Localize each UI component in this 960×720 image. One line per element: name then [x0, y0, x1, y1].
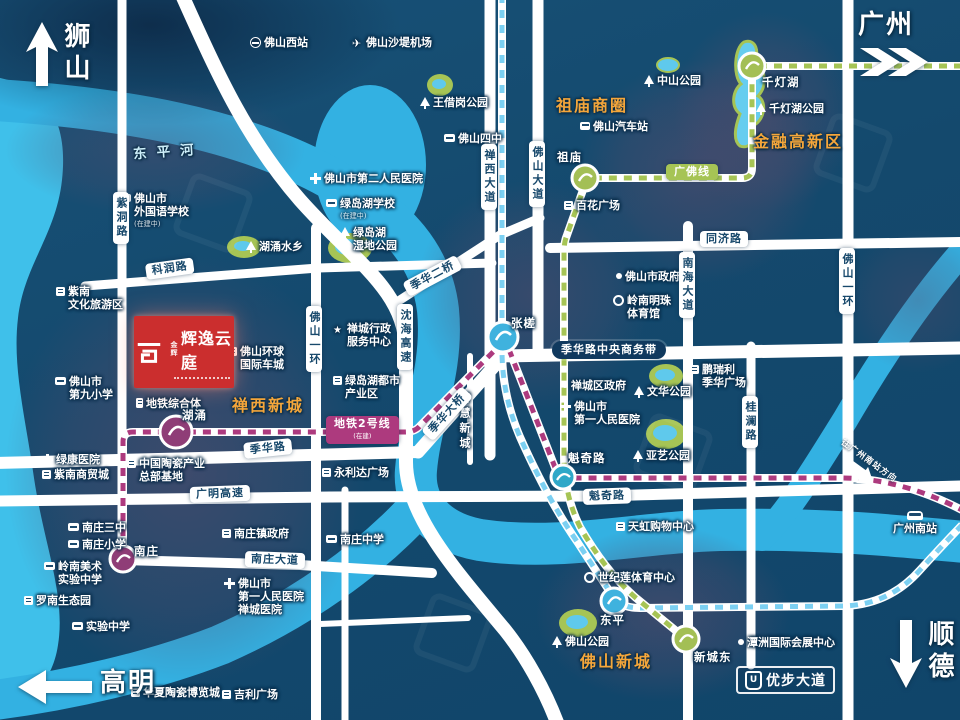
school-icon: [444, 134, 455, 142]
poi-label: 绿岛湖湿地公园: [340, 226, 397, 252]
ubu-avenue-logo: U 优步大道: [736, 666, 835, 694]
direction-label: 顺德: [924, 620, 954, 684]
poi-label: 紫南文化旅游区: [56, 285, 123, 311]
bus-icon: [580, 122, 590, 130]
tree-icon: [420, 97, 430, 106]
poi-label: 南庄小学: [68, 538, 126, 551]
tree-icon: [633, 450, 643, 459]
location-map: 佛山西站佛山沙堤机场佛山市外国语学校(在建中)王借岗公园佛山四中湖涌水乡佛山市第…: [0, 0, 960, 720]
poi-label: 文华公园: [634, 385, 691, 398]
direction-label: 狮山: [60, 22, 90, 86]
poi-label: 中山公园: [644, 74, 701, 87]
road-badge: 沈海高速: [397, 304, 413, 370]
ubu-logo-glyph: U: [745, 671, 762, 690]
station-label: 东平: [600, 614, 625, 627]
road-badge: 季华路: [243, 438, 292, 459]
poi-label: 佛山市第二人民医院: [310, 172, 423, 185]
west-arrow-icon: [18, 670, 94, 704]
developer-brand: 金辉: [169, 341, 179, 357]
station-label: 魁奇路: [568, 452, 606, 465]
river-label: 东平河: [132, 138, 204, 163]
hosp-icon: [42, 454, 53, 465]
bldg-icon: [564, 201, 573, 210]
road-badge: 佛山一环: [306, 306, 322, 372]
bldg-icon: [322, 468, 331, 477]
school-icon: [55, 377, 66, 385]
station-label: 湖涌: [182, 409, 207, 422]
dot-icon: [738, 639, 744, 645]
poi-label: 千灯湖公园: [756, 102, 824, 115]
road-badge: 禅西大道: [481, 144, 497, 210]
station-label: 祖庙: [557, 151, 582, 164]
road-badge: 同济路: [700, 231, 748, 247]
school-icon: [68, 540, 79, 548]
project-name: 辉逸云庭: [181, 325, 234, 373]
tree-icon: [246, 241, 256, 250]
hsr-icon: [907, 511, 923, 520]
poi-label: 岭南明珠体育馆: [613, 294, 671, 320]
poi-label: 永利达广场: [322, 466, 389, 479]
direction-shunde: 顺德: [888, 620, 954, 688]
poi-label: 禅城行政服务中心: [333, 322, 391, 348]
poi-label: 罗南生态园: [24, 594, 91, 607]
south-arrow-icon: [888, 620, 924, 688]
road-badge: 桂澜路: [742, 396, 758, 448]
poi-label: 佛山市外国语学校(在建中): [120, 192, 189, 231]
station-label: 张槎: [511, 317, 536, 330]
poi-label: 实验中学: [72, 620, 130, 633]
poi-label: 佛山环球国际车城: [228, 345, 284, 371]
school-icon: [68, 523, 79, 531]
poi-label: 佛山沙堤机场: [352, 36, 432, 49]
north-arrow-icon: [24, 22, 60, 86]
poi-label: 岭南美术实验中学: [44, 560, 102, 586]
hosp-icon: [224, 578, 235, 589]
bldg-icon: [42, 470, 51, 479]
cloud-logo-icon: [134, 337, 164, 367]
poi-label: 南庄三中: [68, 521, 126, 534]
direction-gaoming: 高明: [18, 668, 156, 704]
poi-label: 鹏瑞利季华广场: [690, 363, 746, 389]
road-badge: 紫洞路: [113, 192, 129, 244]
star-icon: [333, 323, 344, 334]
dot-icon: [562, 382, 568, 388]
school-icon: [44, 562, 55, 570]
east-arrow-icon: [858, 40, 936, 80]
tree-icon: [552, 636, 562, 645]
poi-label: 广州南站: [893, 511, 937, 535]
poi-label: 佛山市第一人民医院: [560, 400, 640, 426]
road-badge: 南庄大道: [245, 551, 306, 569]
school-icon: [326, 535, 337, 543]
hosp-icon: [560, 401, 571, 412]
poi-label: 佛山公园: [552, 635, 609, 648]
tree-icon: [644, 75, 654, 84]
area-label: 祖庙商圈: [556, 92, 628, 116]
direction-label: 广州: [858, 10, 914, 40]
bldg-icon: [127, 459, 136, 468]
dot-icon: [616, 273, 622, 279]
ring-icon: [584, 572, 595, 583]
bldg-icon: [222, 529, 231, 538]
metro-icon: [136, 398, 143, 408]
cbd-belt-label: 季华路中央商务带: [552, 341, 666, 359]
road-badge: 科润路: [145, 257, 195, 280]
poi-label: 中国陶瓷产业总部基地: [127, 457, 205, 483]
poi-label: 世纪莲体育中心: [584, 571, 675, 584]
poi-label: 绿康医院: [42, 453, 100, 466]
area-label: 禅西新城: [232, 392, 304, 416]
logo-caption-dots: [174, 377, 230, 379]
poi-label: 吉利广场: [222, 688, 278, 701]
direction-shishan: 狮山: [24, 22, 90, 86]
ring-icon: [613, 295, 624, 306]
bldg-icon: [56, 287, 65, 296]
direction-guangzhou: 广州: [858, 10, 936, 80]
poi-label: 亚艺公园: [633, 449, 690, 462]
poi-label: 潭洲国际会展中心: [738, 636, 835, 649]
guangfo-line-badge: 广佛线: [666, 164, 718, 180]
poi-label: 禅城区政府: [562, 379, 626, 392]
plane-icon: [352, 37, 363, 48]
poi-label: 天虹购物中心: [616, 520, 694, 533]
station-label: 南庄: [134, 545, 159, 558]
tree-icon: [756, 103, 766, 112]
direction-label: 高明: [100, 668, 156, 698]
station-icon: [250, 37, 261, 48]
poi-label: 湖涌水乡: [246, 240, 303, 253]
ubu-avenue-label: 优步大道: [766, 670, 826, 690]
poi-label: 佛山市第九小学: [55, 375, 113, 401]
poi-label: 南庄镇政府: [222, 527, 289, 540]
poi-label: 绿岛湖学校(在建中): [326, 197, 395, 223]
hosp-icon: [310, 173, 321, 184]
station-label: 千灯湖: [762, 76, 800, 89]
bldg-icon: [690, 365, 699, 374]
poi-label: 王借岗公园: [420, 96, 488, 109]
poi-label: 绿岛湖都市产业区: [333, 374, 400, 400]
tree-icon: [634, 386, 644, 395]
road-badge: 广明高速: [190, 485, 251, 503]
poi-label: 佛山汽车站: [580, 120, 648, 133]
bldg-icon: [333, 376, 342, 385]
tree-icon: [340, 227, 350, 236]
school-icon: [72, 622, 83, 630]
road-badge: 魁奇路: [583, 487, 632, 505]
bldg-icon: [24, 596, 33, 605]
poi-label: 百花广场: [564, 199, 620, 212]
poi-label: 紫南商贸城: [42, 468, 109, 481]
road-badge: 南海大道: [679, 252, 695, 318]
area-label: 金融高新区: [753, 128, 843, 152]
metro-line2-badge: 地铁2号线(在建): [326, 416, 399, 444]
road-badge: 季华二桥: [402, 255, 462, 297]
bldg-icon: [222, 690, 231, 699]
poi-label: 南庄中学: [326, 533, 384, 546]
area-label: 佛山新城: [580, 648, 652, 672]
bldg-icon: [616, 522, 625, 531]
school-icon: [326, 199, 337, 207]
station-label: 新城东: [694, 651, 732, 664]
project-logo: 金辉 辉逸云庭: [134, 316, 234, 388]
poi-label: 佛山市政府: [616, 270, 680, 283]
poi-label: 佛山西站: [250, 36, 308, 49]
road-badge: 佛山一环: [839, 248, 855, 314]
poi-label: 佛山市第一人民医院禅城医院: [224, 577, 304, 616]
road-badge: 佛山大道: [529, 141, 545, 207]
